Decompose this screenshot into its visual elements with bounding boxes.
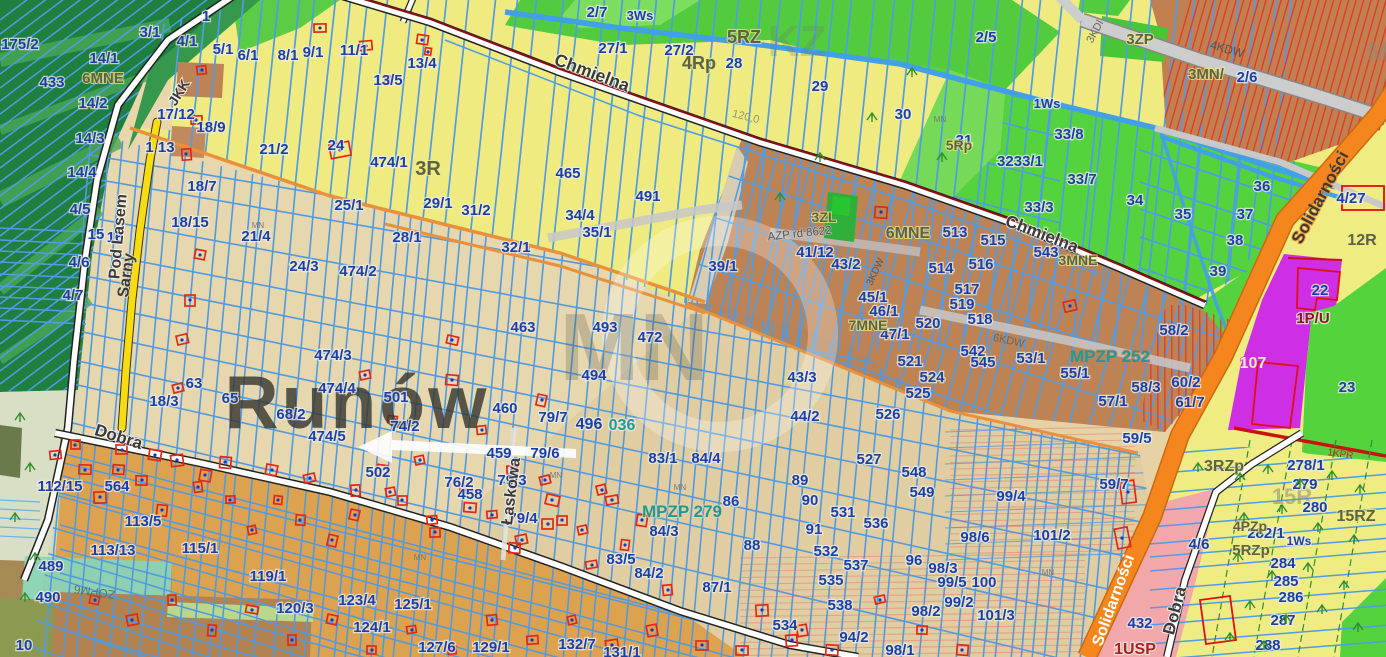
svg-text:37: 37 [1237, 206, 1254, 223]
svg-text:63: 63 [186, 375, 203, 392]
svg-text:39: 39 [1210, 263, 1227, 280]
svg-text:18/7: 18/7 [187, 178, 216, 195]
svg-text:115/1: 115/1 [182, 540, 219, 557]
svg-text:526: 526 [875, 406, 900, 423]
svg-text:4Rp: 4Rp [682, 53, 716, 73]
svg-text:15RZ: 15RZ [1336, 508, 1375, 525]
svg-text:11/1: 11/1 [340, 42, 368, 59]
svg-text:34/4: 34/4 [565, 207, 595, 224]
svg-text:10: 10 [16, 637, 33, 654]
svg-text:119/1: 119/1 [250, 568, 287, 585]
svg-text:86: 86 [723, 493, 740, 510]
svg-text:5RZ: 5RZ [727, 27, 761, 47]
svg-text:9/1: 9/1 [303, 44, 324, 61]
svg-text:124/1: 124/1 [353, 619, 391, 636]
svg-text:496: 496 [576, 416, 603, 433]
svg-text:1USP: 1USP [1114, 641, 1156, 657]
svg-text:463: 463 [510, 319, 535, 336]
svg-text:14/4: 14/4 [67, 164, 97, 181]
svg-text:68/2: 68/2 [276, 406, 305, 423]
svg-text:131/1: 131/1 [603, 644, 641, 657]
svg-text:4/27: 4/27 [1336, 190, 1365, 207]
svg-text:521: 521 [897, 353, 922, 370]
svg-text:98/6: 98/6 [960, 529, 989, 546]
svg-text:4PZp: 4PZp [1233, 518, 1267, 534]
svg-text:545: 545 [970, 354, 995, 371]
svg-text:100: 100 [971, 574, 996, 591]
svg-text:MN: MN [934, 115, 947, 124]
svg-text:M: M [1367, 36, 1386, 66]
svg-text:13/5: 13/5 [373, 72, 402, 89]
svg-text:21/2: 21/2 [259, 141, 288, 158]
svg-text:548: 548 [901, 464, 926, 481]
svg-text:23: 23 [1339, 379, 1356, 396]
svg-text:3ZL: 3ZL [812, 209, 837, 225]
svg-text:5Rp: 5Rp [946, 137, 972, 153]
svg-text:513: 513 [942, 224, 967, 241]
svg-text:33/8: 33/8 [1054, 126, 1083, 143]
svg-text:036: 036 [609, 417, 636, 434]
svg-text:2/6: 2/6 [1237, 69, 1258, 86]
svg-text:99/2: 99/2 [944, 594, 973, 611]
svg-text:22: 22 [1312, 282, 1329, 299]
svg-text:4/1: 4/1 [177, 33, 198, 50]
svg-text:25/1: 25/1 [334, 197, 363, 214]
svg-text:12R: 12R [1347, 232, 1377, 249]
svg-text:460: 460 [492, 400, 517, 417]
svg-text:3233/1: 3233/1 [997, 153, 1043, 170]
svg-text:33/7: 33/7 [1067, 171, 1096, 188]
svg-text:33/3: 33/3 [1024, 199, 1053, 216]
svg-text:MN: MN [559, 294, 708, 401]
svg-text:MPZP 279: MPZP 279 [642, 502, 722, 521]
svg-text:535: 535 [818, 572, 843, 589]
svg-text:89: 89 [792, 472, 809, 489]
svg-text:494: 494 [581, 367, 607, 384]
svg-text:98/1: 98/1 [885, 642, 914, 657]
svg-text:284: 284 [1270, 555, 1296, 572]
svg-text:286: 286 [1278, 589, 1303, 606]
svg-text:1: 1 [202, 8, 210, 25]
svg-text:MN: MN [550, 471, 563, 480]
svg-text:94/2: 94/2 [839, 629, 868, 646]
svg-text:125/1: 125/1 [394, 596, 432, 613]
svg-text:59/7: 59/7 [1099, 476, 1128, 493]
svg-text:14/2: 14/2 [78, 95, 107, 112]
svg-text:44/2: 44/2 [790, 408, 819, 425]
svg-text:MN: MN [252, 221, 265, 230]
svg-text:55/1: 55/1 [1060, 365, 1089, 382]
svg-text:29: 29 [812, 78, 829, 95]
svg-text:491: 491 [635, 188, 660, 205]
svg-text:1Ws: 1Ws [1034, 96, 1061, 111]
svg-text:537: 537 [843, 557, 868, 574]
svg-text:532: 532 [813, 543, 838, 560]
svg-text:531: 531 [830, 504, 855, 521]
svg-text:65: 65 [222, 390, 239, 407]
svg-text:502: 502 [365, 464, 390, 481]
svg-text:79/6: 79/6 [530, 445, 559, 462]
svg-text:28/1: 28/1 [392, 229, 421, 246]
svg-text:59/5: 59/5 [1122, 430, 1151, 447]
svg-text:13/4: 13/4 [407, 55, 437, 72]
svg-text:35: 35 [1175, 206, 1192, 223]
svg-text:493: 493 [592, 319, 617, 336]
svg-text:474/1: 474/1 [370, 154, 408, 171]
svg-text:43/2: 43/2 [831, 256, 860, 273]
svg-text:107: 107 [1240, 355, 1267, 372]
svg-text:84/2: 84/2 [634, 565, 663, 582]
svg-text:61/7: 61/7 [1175, 394, 1204, 411]
svg-text:564: 564 [104, 478, 130, 495]
svg-text:3MN/: 3MN/ [1188, 66, 1225, 83]
svg-text:6/1: 6/1 [238, 47, 259, 64]
svg-text:58/3: 58/3 [1131, 379, 1160, 396]
svg-text:287: 287 [1270, 612, 1295, 629]
svg-text:84/3: 84/3 [649, 523, 678, 540]
svg-text:518: 518 [967, 311, 992, 328]
svg-text:527: 527 [856, 451, 881, 468]
svg-text:27/1: 27/1 [598, 40, 627, 57]
svg-text:1Ws: 1Ws [1287, 534, 1312, 548]
svg-text:515: 515 [980, 232, 1005, 249]
svg-text:280: 280 [1302, 499, 1327, 516]
svg-text:4/5: 4/5 [70, 201, 91, 218]
svg-text:519: 519 [949, 296, 974, 313]
svg-text:490: 490 [35, 589, 60, 606]
svg-text:18/15: 18/15 [171, 214, 209, 231]
svg-text:3RZp: 3RZp [1204, 458, 1244, 475]
svg-text:18/3: 18/3 [149, 393, 178, 410]
svg-text:1 13: 1 13 [145, 139, 174, 156]
svg-text:98/2: 98/2 [911, 603, 940, 620]
svg-text:4/6: 4/6 [1189, 536, 1210, 553]
svg-text:MPZP 252: MPZP 252 [1070, 347, 1150, 366]
svg-text:24/3: 24/3 [289, 258, 318, 275]
svg-text:285: 285 [1273, 573, 1298, 590]
svg-text:28: 28 [726, 55, 743, 72]
svg-text:3MNE: 3MNE [1059, 252, 1098, 268]
svg-text:74/2: 74/2 [390, 418, 419, 435]
svg-text:534: 534 [772, 617, 798, 634]
svg-text:90: 90 [802, 492, 819, 509]
svg-text:15: 15 [88, 226, 105, 243]
svg-text:516: 516 [968, 256, 993, 273]
svg-text:KZ: KZ [768, 17, 827, 66]
svg-text:524: 524 [919, 369, 945, 386]
svg-text:MN: MN [674, 483, 687, 492]
svg-text:101/3: 101/3 [977, 607, 1015, 624]
svg-text:474/5: 474/5 [308, 428, 346, 445]
svg-text:84/4: 84/4 [691, 450, 721, 467]
svg-text:99/5: 99/5 [937, 574, 966, 591]
svg-text:132/7: 132/7 [558, 636, 596, 653]
svg-text:6MNE: 6MNE [886, 225, 931, 242]
svg-text:Runów: Runów [225, 360, 490, 444]
svg-text:14/1: 14/1 [89, 50, 118, 67]
svg-text:60/2: 60/2 [1171, 374, 1200, 391]
svg-text:31/2: 31/2 [461, 202, 490, 219]
svg-text:113/13: 113/13 [90, 542, 135, 559]
svg-text:88: 88 [744, 537, 761, 554]
svg-text:474/4: 474/4 [318, 380, 356, 397]
svg-text:41/12: 41/12 [796, 244, 834, 261]
svg-text:120/3: 120/3 [276, 600, 314, 617]
svg-text:21/4: 21/4 [241, 228, 271, 245]
svg-text:175/2: 175/2 [1, 36, 39, 53]
svg-text:39/1: 39/1 [708, 258, 737, 275]
svg-text:127/6: 127/6 [418, 639, 456, 656]
svg-text:7MNE: 7MNE [849, 317, 888, 333]
svg-text:8/1: 8/1 [278, 47, 299, 64]
svg-text:43/3: 43/3 [787, 369, 816, 386]
svg-text:3Ws: 3Ws [627, 8, 654, 23]
svg-text:3ZP: 3ZP [1126, 31, 1154, 48]
svg-text:433: 433 [39, 74, 64, 91]
svg-text:18/9: 18/9 [196, 119, 225, 136]
svg-text:4/6: 4/6 [69, 254, 90, 271]
svg-text:17/12: 17/12 [157, 106, 195, 123]
svg-text:3R: 3R [415, 158, 441, 180]
svg-text:472: 472 [637, 329, 662, 346]
svg-text:474/3: 474/3 [314, 347, 352, 364]
svg-text:2/5: 2/5 [976, 29, 997, 46]
svg-text:4/7: 4/7 [63, 287, 84, 304]
svg-text:5/1: 5/1 [213, 41, 234, 58]
svg-text:520: 520 [915, 315, 940, 332]
svg-text:83/1: 83/1 [648, 450, 677, 467]
svg-text:6MNE: 6MNE [82, 70, 124, 87]
svg-text:87/1: 87/1 [702, 579, 731, 596]
svg-text:34: 34 [1127, 192, 1144, 209]
svg-text:514: 514 [928, 260, 954, 277]
svg-text:96: 96 [906, 552, 923, 569]
svg-text:113/5: 113/5 [125, 513, 162, 530]
svg-text:38: 38 [1227, 232, 1244, 249]
svg-text:112/15: 112/15 [37, 478, 82, 495]
svg-text:3/1: 3/1 [140, 24, 161, 41]
svg-text:79/7: 79/7 [538, 409, 567, 426]
svg-text:14/3: 14/3 [75, 130, 104, 147]
svg-text:101/2: 101/2 [1033, 527, 1071, 544]
svg-text:24: 24 [328, 137, 345, 154]
svg-text:MN: MN [1042, 568, 1055, 577]
svg-text:474/2: 474/2 [339, 263, 377, 280]
svg-text:99/4: 99/4 [996, 488, 1026, 505]
svg-text:91: 91 [806, 521, 823, 538]
svg-text:32/1: 32/1 [501, 239, 530, 256]
svg-text:549: 549 [909, 484, 934, 501]
svg-text:465: 465 [555, 165, 580, 182]
svg-text:489: 489 [38, 558, 63, 575]
svg-text:278/1: 278/1 [1287, 457, 1325, 474]
svg-text:36: 36 [1254, 178, 1271, 195]
svg-text:2/7: 2/7 [587, 4, 608, 21]
svg-text:538: 538 [827, 597, 852, 614]
svg-text:432: 432 [1127, 615, 1152, 632]
svg-text:MN: MN [414, 553, 427, 562]
svg-text:83/5: 83/5 [606, 551, 635, 568]
svg-text:501: 501 [383, 389, 408, 406]
svg-text:1P/U: 1P/U [1296, 310, 1329, 327]
svg-text:53/1: 53/1 [1016, 350, 1045, 367]
svg-text:29/1: 29/1 [423, 195, 452, 212]
svg-text:57/1: 57/1 [1098, 393, 1127, 410]
svg-text:458: 458 [457, 486, 482, 503]
svg-text:35/1: 35/1 [582, 224, 611, 241]
svg-text:123/4: 123/4 [338, 592, 376, 609]
svg-text:58/2: 58/2 [1159, 322, 1188, 339]
svg-text:129/1: 129/1 [472, 639, 510, 656]
svg-text:536: 536 [863, 515, 888, 532]
svg-text:525: 525 [905, 385, 930, 402]
svg-text:30: 30 [895, 106, 912, 123]
